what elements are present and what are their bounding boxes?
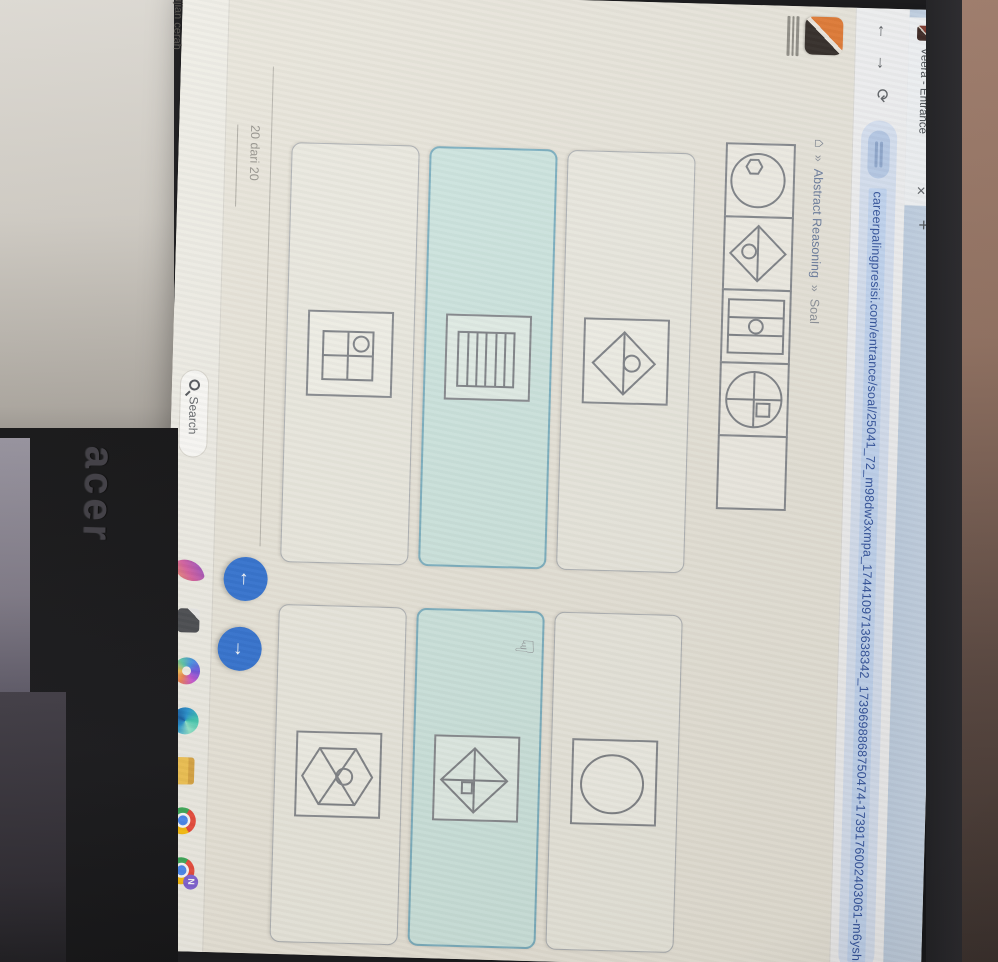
next-question-button[interactable]: → bbox=[217, 626, 262, 671]
breadcrumb-separator: » bbox=[808, 285, 822, 292]
question-cell-1-circle-hexagon-icon bbox=[724, 142, 796, 219]
profile-badge: N bbox=[183, 874, 198, 889]
note-text: ujian cerah bbox=[171, 0, 184, 50]
forward-icon[interactable]: → bbox=[872, 54, 892, 72]
reload-icon[interactable]: ⟳ bbox=[871, 88, 891, 103]
question-sequence-strip bbox=[716, 142, 796, 511]
breadcrumb: ⌂ » Abstract Reasoning » Soal bbox=[806, 139, 828, 324]
hexagon-x-circle-icon bbox=[294, 730, 382, 818]
large-circle-icon bbox=[570, 738, 658, 826]
answer-option-2[interactable] bbox=[545, 612, 682, 953]
photo-of-laptop: Veera - Entrance ✕ + ← → ⟳ careerpalingp… bbox=[0, 0, 998, 962]
laptop-hinge bbox=[0, 438, 30, 700]
acer-brand-logo: acer bbox=[78, 445, 121, 566]
answer-option-4-selected[interactable]: ☞ bbox=[407, 608, 544, 949]
site-logo-caption bbox=[785, 16, 802, 56]
progress-underline bbox=[235, 125, 238, 207]
back-icon[interactable]: ← bbox=[873, 22, 893, 40]
breadcrumb-separator: » bbox=[812, 155, 826, 162]
laptop-base-highlight bbox=[0, 692, 66, 962]
search-label: Search bbox=[186, 396, 201, 434]
home-icon[interactable]: ⌂ bbox=[811, 139, 828, 149]
breadcrumb-item-soal: Soal bbox=[807, 299, 822, 324]
site-info-badge[interactable] bbox=[867, 130, 890, 179]
handwritten-note: f ujian cerah bbox=[162, 0, 192, 108]
laptop-screen: Veera - Entrance ✕ + ← → ⟳ careerpalingp… bbox=[156, 0, 948, 962]
start-button[interactable] bbox=[183, 327, 210, 354]
diamond-cross-square-icon bbox=[432, 734, 520, 822]
search-icon bbox=[189, 379, 200, 390]
previous-question-button[interactable]: ← bbox=[223, 556, 268, 601]
question-cell-5-empty bbox=[716, 434, 788, 511]
breadcrumb-item-abstract-reasoning[interactable]: Abstract Reasoning bbox=[809, 169, 826, 278]
url-text[interactable]: careerpalingpresisi.com/entrance/soal/25… bbox=[847, 188, 887, 962]
question-progress: 20 dari 20 bbox=[247, 125, 263, 181]
answer-option-1[interactable] bbox=[556, 150, 696, 573]
taskbar-search[interactable]: Search bbox=[178, 369, 209, 458]
site-logo[interactable] bbox=[804, 16, 843, 55]
design-app-icon[interactable] bbox=[174, 555, 205, 586]
answer-option-5[interactable] bbox=[280, 142, 420, 565]
diamond-midline-circle-icon bbox=[582, 317, 670, 405]
question-cell-4-circle-cross-icon bbox=[718, 361, 790, 438]
question-cell-3-striped-square-icon bbox=[720, 288, 792, 365]
answer-option-6[interactable] bbox=[270, 604, 407, 945]
window-grid-circle-icon bbox=[306, 310, 394, 398]
desk-surface bbox=[0, 0, 174, 478]
horizontal-stripes-icon bbox=[444, 313, 532, 401]
desk-surface-right bbox=[962, 0, 998, 962]
question-cell-2-diamond-circle-icon bbox=[722, 215, 794, 292]
test-page: ⌂ » Abstract Reasoning » Soal bbox=[156, 0, 856, 962]
answer-option-3-selected[interactable] bbox=[418, 146, 558, 569]
pointer-hand-icon: ☞ bbox=[513, 630, 537, 661]
